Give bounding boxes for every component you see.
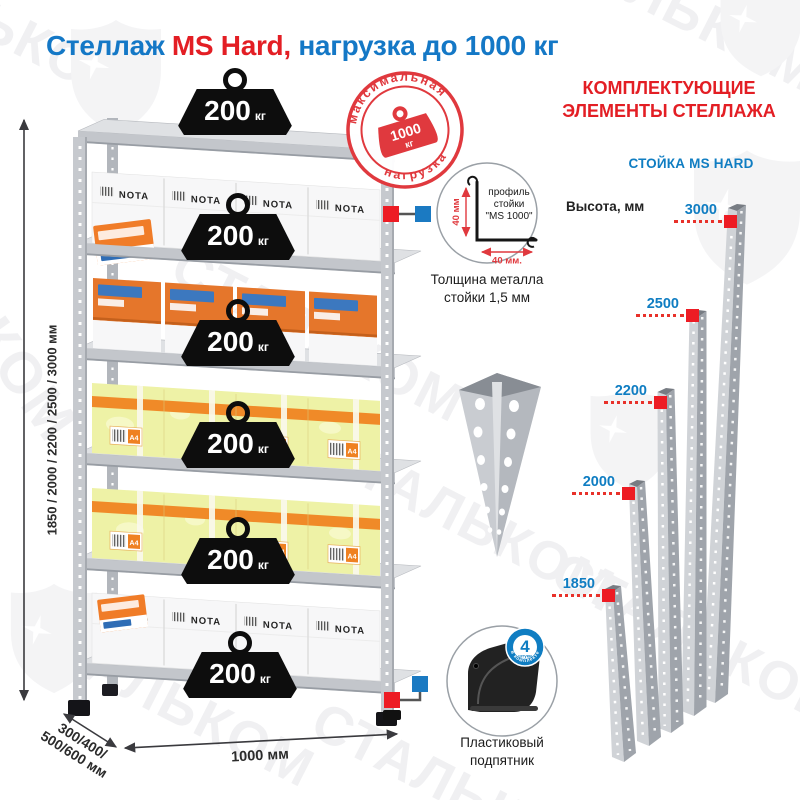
thickness-note: Толщина металла стойки 1,5 мм: [425, 271, 549, 307]
load-unit: кг: [258, 442, 269, 456]
red-marker-square: [602, 589, 615, 602]
height-callout-3000: 3000: [674, 202, 722, 223]
components-header-line1: КОМПЛЕКТУЮЩИЕ: [534, 77, 800, 100]
profile-dim-horizontal: 40 мм.: [492, 256, 522, 267]
height-value: 3000: [674, 202, 722, 218]
weight-ring-icon: [226, 193, 250, 217]
weight-kettlebell-icon: 200кг: [180, 538, 296, 584]
upright-section-title: СТОЙКА MS HARD: [556, 156, 800, 171]
page-title: Стеллаж MS Hard, нагрузка до 1000 кг: [46, 30, 558, 62]
brand-sticker: [97, 594, 148, 632]
box-brand-label: NOTA: [335, 203, 365, 216]
height-callout-2200: 2200: [604, 383, 652, 404]
a4-label: A4: [110, 426, 142, 446]
load-weight-level5: 200кг: [182, 631, 298, 698]
a4-label: A4: [328, 440, 360, 460]
upright-3000: [702, 204, 746, 703]
load-value: 200: [204, 89, 251, 133]
foot-label-line1: Пластиковый: [440, 734, 564, 752]
weight-ring-icon: [226, 401, 250, 425]
load-unit: кг: [258, 234, 269, 248]
svg-text:A4: A4: [130, 540, 139, 548]
weight-kettlebell-icon: 200кг: [182, 652, 298, 698]
callout-top: [383, 206, 431, 222]
red-marker-square: [654, 396, 667, 409]
box-brand-label: NOTA: [335, 624, 365, 637]
weight-kettlebell-icon: 200кг: [180, 214, 296, 260]
dotted-leader-line: [604, 401, 652, 404]
load-weight-level3: 200кг: [180, 401, 296, 468]
weight-ring-icon: [226, 517, 250, 541]
profile-label-line2: стойки: [480, 199, 538, 211]
a4-label: A4: [110, 531, 142, 551]
weight-kettlebell-icon: 200кг: [177, 89, 293, 135]
title-model: MS Hard,: [172, 30, 291, 61]
foot-detail: в комплекте 4 штуки: [447, 626, 557, 736]
quantity-badge: в комплекте 4 штуки: [506, 628, 544, 666]
height-callout-1850: 1850: [552, 576, 600, 597]
badge-unit: штуки: [518, 654, 532, 659]
load-value: 200: [207, 214, 254, 258]
foot-label-line2: подпятник: [440, 752, 564, 770]
red-marker-square: [686, 309, 699, 322]
dotted-leader-line: [636, 314, 684, 317]
profile-dim-vertical: 40 мм: [451, 198, 462, 225]
red-marker-square: [622, 487, 635, 500]
load-value: 200: [209, 652, 256, 696]
upright-2000: [629, 480, 661, 746]
height-value: 2500: [636, 296, 684, 312]
dotted-leader-line: [552, 594, 600, 597]
uprights-group: [605, 204, 746, 762]
infographic-page: СТАЛЬКОМ СТАЛЬКОМ СТАЛЬКОМ СТАЛЬКОМ СТАЛ…: [0, 0, 800, 800]
load-weight-level1: 200кг: [180, 193, 296, 260]
weight-kettlebell-icon: 200кг: [180, 320, 296, 366]
heights-axis-label: Высота, мм: [566, 199, 644, 214]
upright-2500: [682, 310, 707, 716]
load-weight-level2: 200кг: [180, 299, 296, 366]
profile-label-line1: профиль: [480, 187, 538, 199]
load-unit: кг: [258, 558, 269, 572]
height-value: 1850: [552, 576, 600, 592]
svg-text:A4: A4: [130, 435, 139, 443]
a4-label: A4: [328, 545, 360, 565]
svg-text:A4: A4: [348, 448, 357, 456]
box-brand-label: NOTA: [191, 615, 221, 628]
red-marker-square: [724, 215, 737, 228]
box-brand-label: NOTA: [119, 190, 149, 203]
height-value: 2000: [572, 474, 620, 490]
height-value: 2200: [604, 383, 652, 399]
dotted-leader-line: [572, 492, 620, 495]
load-weight-level4: 200кг: [180, 517, 296, 584]
thickness-line1: Толщина металла: [425, 271, 549, 289]
components-header: КОМПЛЕКТУЮЩИЕ ЭЛЕМЕНТЫ СТЕЛЛАЖА: [534, 77, 800, 124]
foot-label: Пластиковый подпятник: [440, 734, 564, 770]
upright-2200: [658, 388, 684, 733]
components-header-line2: ЭЛЕМЕНТЫ СТЕЛЛАЖА: [534, 100, 800, 123]
load-weight-top: 200кг: [177, 68, 293, 135]
title-suffix: нагрузка до 1000 кг: [291, 30, 559, 61]
profile-label: профиль стойки "MS 1000": [480, 187, 538, 223]
width-dimension-label: 1000 мм: [231, 746, 290, 765]
load-unit: кг: [260, 672, 271, 686]
weight-ring-icon: [228, 631, 252, 655]
load-value: 200: [207, 320, 254, 364]
load-value: 200: [207, 538, 254, 582]
height-callout-2000: 2000: [572, 474, 620, 495]
upright-1850: [605, 585, 636, 762]
weight-kettlebell-icon: 200кг: [180, 422, 296, 468]
height-dimension-label: 1850 / 2000 / 2200 / 2500 / 3000 мм: [45, 325, 60, 536]
load-unit: кг: [258, 340, 269, 354]
svg-text:A4: A4: [348, 553, 357, 561]
weight-ring-icon: [223, 68, 247, 92]
weight-ring-icon: [226, 299, 250, 323]
title-prefix: Стеллаж: [46, 30, 172, 61]
profile-label-line3: "MS 1000": [480, 211, 538, 223]
dotted-leader-line: [674, 220, 722, 223]
upright-profile-3d: [459, 373, 541, 557]
load-value: 200: [207, 422, 254, 466]
thickness-line2: стойки 1,5 мм: [425, 289, 549, 307]
load-unit: кг: [255, 109, 266, 123]
height-callout-2500: 2500: [636, 296, 684, 317]
